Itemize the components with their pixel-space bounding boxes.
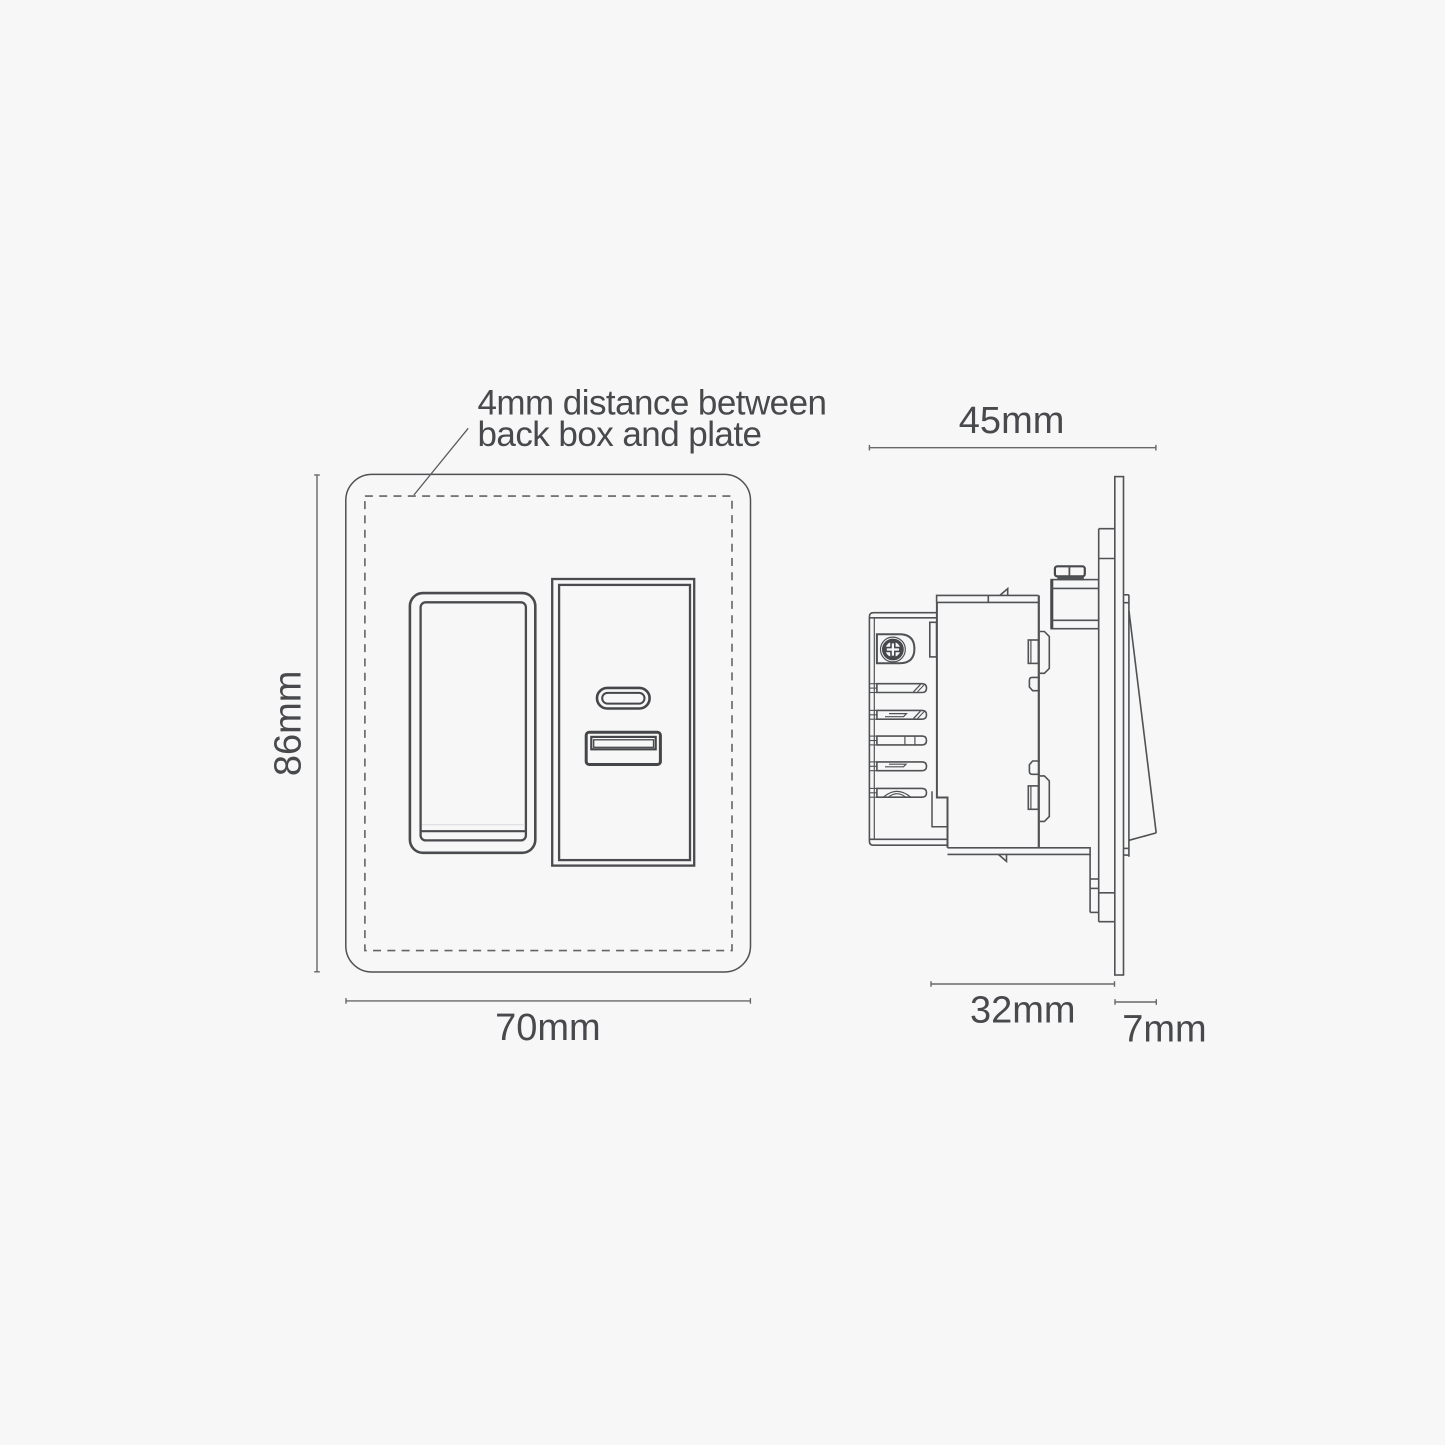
svg-text:7mm: 7mm (1122, 1008, 1206, 1050)
svg-text:86mm: 86mm (268, 671, 310, 777)
svg-text:70mm: 70mm (495, 1007, 601, 1049)
svg-text:45mm: 45mm (959, 400, 1065, 442)
svg-text:back box and plate: back box and plate (478, 415, 762, 454)
svg-text:32mm: 32mm (970, 990, 1076, 1032)
